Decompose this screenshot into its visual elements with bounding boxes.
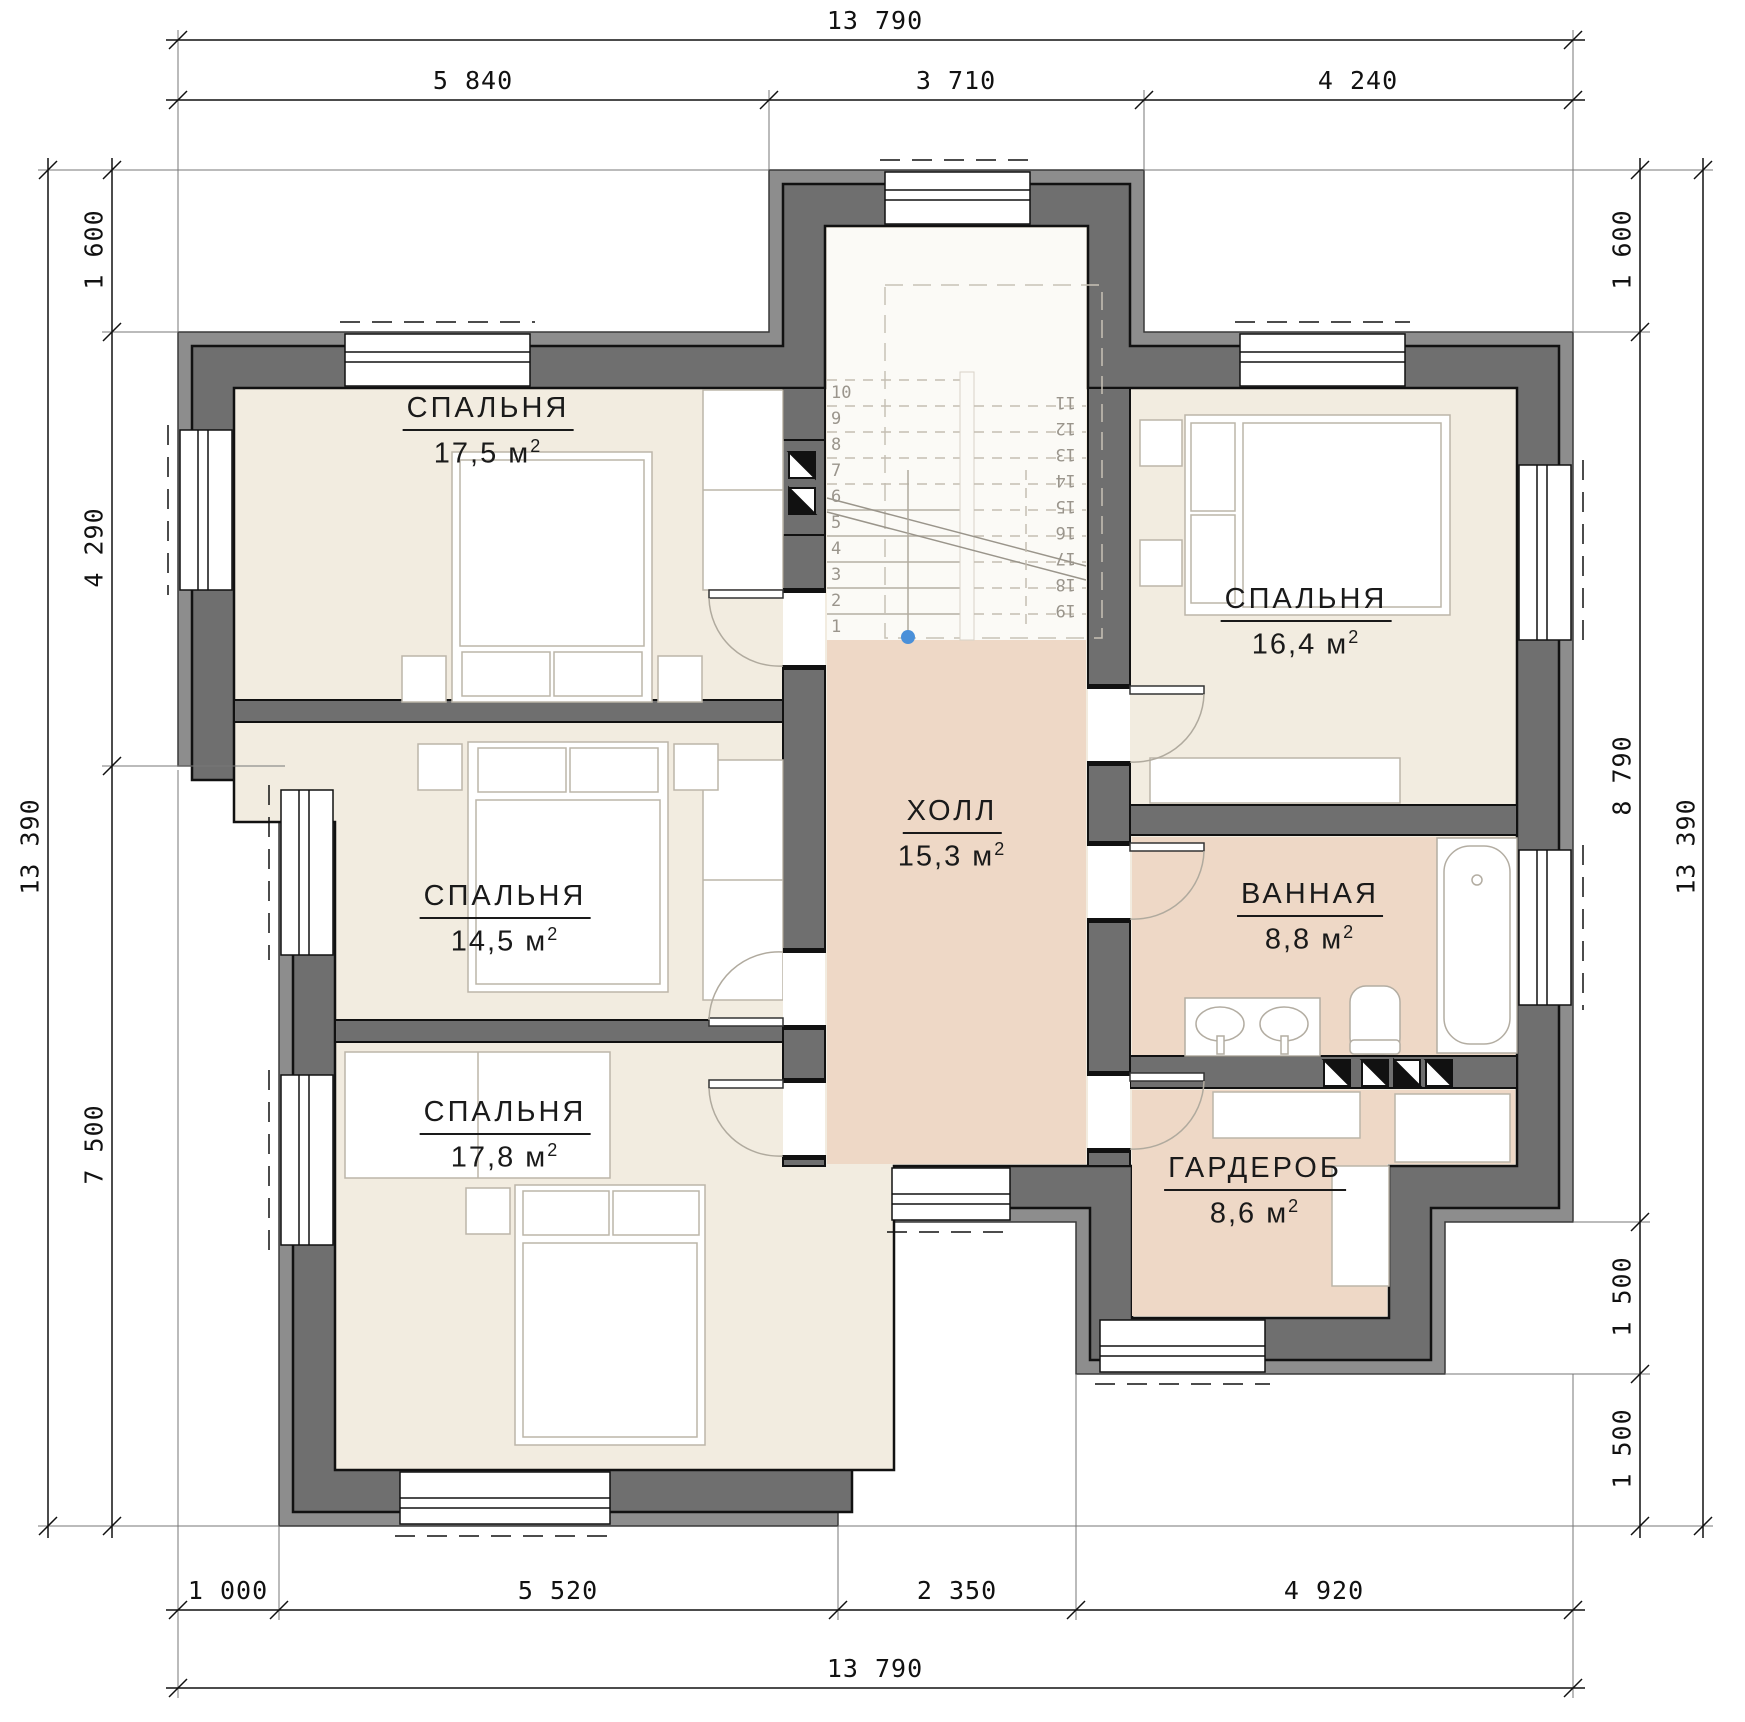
pillow bbox=[478, 748, 566, 792]
dresser bbox=[1150, 758, 1400, 803]
dim-bottom-overall: 13 790 bbox=[805, 1654, 945, 1683]
stair-step-number: 9 bbox=[831, 409, 865, 429]
dim-right-seg-4: 1 500 bbox=[1608, 1379, 1637, 1519]
room-name: СПАЛЬНЯ bbox=[420, 1096, 591, 1135]
stair-step-number: 11 bbox=[1042, 392, 1076, 412]
stair-step-number: 17 bbox=[1042, 548, 1076, 568]
room-label-bathroom: ВАННАЯ 8,8 м2 bbox=[1237, 878, 1383, 957]
dim-top-seg-2: 3 710 bbox=[886, 66, 1026, 95]
room-area: 14,5 м2 bbox=[420, 924, 591, 959]
dim-bottom-seg-3: 2 350 bbox=[887, 1576, 1027, 1605]
stair-step-number: 4 bbox=[831, 539, 865, 559]
room-area: 8,8 м2 bbox=[1237, 922, 1383, 957]
partition-bed4-bath bbox=[1130, 805, 1517, 835]
stair-step-number: 13 bbox=[1042, 444, 1076, 464]
room-area: 17,8 м2 bbox=[420, 1140, 591, 1175]
dim-left-seg-3: 7 500 bbox=[80, 1075, 109, 1215]
stair-step-number: 3 bbox=[831, 565, 865, 585]
stair-start-marker bbox=[901, 630, 915, 644]
partition-bed1-bed2 bbox=[234, 700, 783, 722]
nightstand bbox=[466, 1188, 510, 1234]
stair-step-number: 7 bbox=[831, 461, 865, 481]
pillow bbox=[462, 652, 550, 696]
nightstand bbox=[402, 656, 446, 702]
room-name: СПАЛЬНЯ bbox=[1221, 583, 1392, 622]
room-label-bedroom-bottom-left: СПАЛЬНЯ 17,8 м2 bbox=[420, 1096, 591, 1175]
dim-bottom-seg-1: 1 000 bbox=[158, 1576, 298, 1605]
nightstand bbox=[1140, 540, 1182, 586]
dim-right-seg-2: 8 790 bbox=[1608, 706, 1637, 846]
stair-step-number: 12 bbox=[1042, 418, 1076, 438]
dim-right-seg-1: 1 600 bbox=[1608, 180, 1637, 320]
pillow bbox=[554, 652, 642, 696]
dim-bottom-seg-2: 5 520 bbox=[488, 1576, 628, 1605]
room-label-wardrobe-room: ГАРДЕРОБ 8,6 м2 bbox=[1164, 1152, 1346, 1231]
stair-step-number: 19 bbox=[1042, 600, 1076, 620]
stair-step-number: 5 bbox=[831, 513, 865, 533]
room-name: СПАЛЬНЯ bbox=[403, 392, 574, 431]
room-area: 16,4 м2 bbox=[1221, 627, 1392, 662]
room-area: 17,5 м2 bbox=[403, 436, 574, 471]
nightstand bbox=[674, 744, 718, 790]
floor-plan-drawing bbox=[0, 0, 1745, 1722]
stair-step-number: 6 bbox=[831, 487, 865, 507]
room-area: 15,3 м2 bbox=[898, 839, 1006, 874]
room-label-hall: ХОЛЛ 15,3 м2 bbox=[898, 795, 1006, 874]
room-label-bedroom-mid-left: СПАЛЬНЯ 14,5 м2 bbox=[420, 880, 591, 959]
stair-step-number: 10 bbox=[831, 383, 865, 403]
dim-left-seg-1: 1 600 bbox=[80, 180, 109, 320]
room-name: СПАЛЬНЯ bbox=[420, 880, 591, 919]
hall-floor bbox=[827, 640, 1086, 1164]
furniture-bedroom-mid-left bbox=[418, 742, 783, 1000]
room-label-bedroom-top-right: СПАЛЬНЯ 16,4 м2 bbox=[1221, 583, 1392, 662]
room-name: ХОЛЛ bbox=[903, 795, 1002, 834]
stair-step-number: 18 bbox=[1042, 574, 1076, 594]
pillow bbox=[1191, 423, 1235, 511]
dim-right-overall: 13 390 bbox=[1672, 777, 1701, 917]
floor-plan: 13 790 5 840 3 710 4 240 1 000 5 520 2 3… bbox=[0, 0, 1745, 1722]
room-label-bedroom-top-left: СПАЛЬНЯ 17,5 м2 bbox=[403, 392, 574, 471]
nightstand bbox=[658, 656, 702, 702]
stair-step-number: 16 bbox=[1042, 522, 1076, 542]
stair-step-number: 2 bbox=[831, 591, 865, 611]
dim-left-overall: 13 390 bbox=[16, 777, 45, 917]
stair-step-number: 14 bbox=[1042, 470, 1076, 490]
stair-step-number: 1 bbox=[831, 617, 865, 637]
dim-top-seg-3: 4 240 bbox=[1288, 66, 1428, 95]
nightstand bbox=[418, 744, 462, 790]
dim-right-seg-3: 1 500 bbox=[1608, 1227, 1637, 1367]
pillow bbox=[570, 748, 658, 792]
room-name: ВАННАЯ bbox=[1237, 878, 1383, 917]
stair-step-number: 15 bbox=[1042, 496, 1076, 516]
dim-top-overall: 13 790 bbox=[805, 6, 945, 35]
nightstand bbox=[1140, 420, 1182, 466]
room-area: 8,6 м2 bbox=[1164, 1196, 1346, 1231]
stair-step-number: 8 bbox=[831, 435, 865, 455]
pillow bbox=[613, 1191, 699, 1235]
dim-top-seg-1: 5 840 bbox=[403, 66, 543, 95]
dim-bottom-seg-4: 4 920 bbox=[1254, 1576, 1394, 1605]
pillow bbox=[523, 1191, 609, 1235]
room-name: ГАРДЕРОБ bbox=[1164, 1152, 1346, 1191]
dim-left-seg-2: 4 290 bbox=[80, 478, 109, 618]
